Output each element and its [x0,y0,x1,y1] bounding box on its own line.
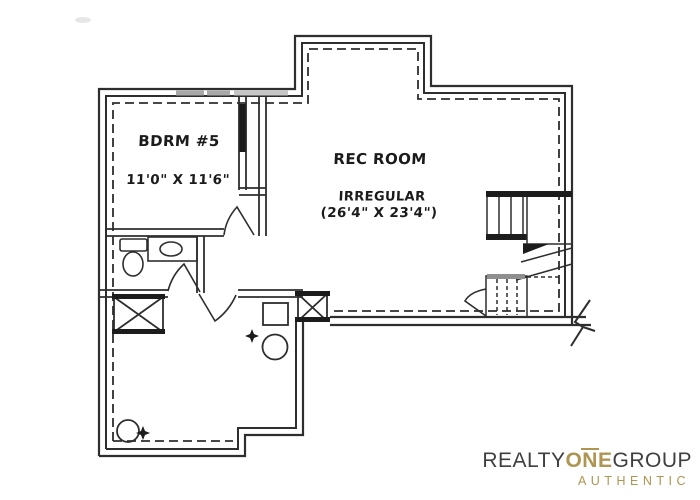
floor-plan-canvas: BDRM #5 11'0" X 11'6" REC ROOM IRREGULAR… [0,0,700,500]
recroom-dimensions: (26'4" X 23'4") [320,205,438,221]
scan-artifact [75,17,91,23]
window-icons [176,91,288,96]
bedroom-label: BDRM #5 [138,132,220,150]
exterior-walls [99,36,591,456]
brand-group: GROUP [612,449,692,472]
brokerage-logo-sub: AUTHENTIC [482,475,692,488]
bathroom-door-swing [168,264,200,292]
recroom-label: REC ROOM [333,150,427,168]
stair-top-edge [486,191,572,197]
sump-pump-icon [117,420,139,442]
window-well-mid-icon [295,291,330,322]
bedroom-dimensions: 11'0" X 11'6" [126,172,231,188]
floor-plan-svg [0,0,700,500]
water-heater-icon [263,335,288,360]
brand-realty: REALTY [482,449,565,472]
utility-door-swing [199,294,236,321]
wall-break-icon [571,300,595,346]
sink-vanity-icon [148,237,197,261]
window-well-left-icon [112,294,165,334]
chase-solid-fill [240,104,246,152]
stair-treads-lower-dashed [497,279,517,315]
furnace-icon [263,303,288,325]
brokerage-logo-name: REALTYONEGROUP [482,450,692,472]
stair-direction-wedge [523,244,549,254]
stairs-door-swing [465,289,486,316]
toilet-icon [120,239,147,276]
stair-mid-edge [486,234,527,240]
floor-drain-icon [245,329,259,343]
recroom-shape-note: IRREGULAR [338,190,426,205]
brand-one: ONE [565,449,612,472]
stair-treads-upper [487,197,523,235]
brokerage-logo: REALTYONEGROUP AUTHENTIC [482,450,692,488]
interior-walls [99,96,303,297]
bedroom-door-swing [224,207,254,235]
